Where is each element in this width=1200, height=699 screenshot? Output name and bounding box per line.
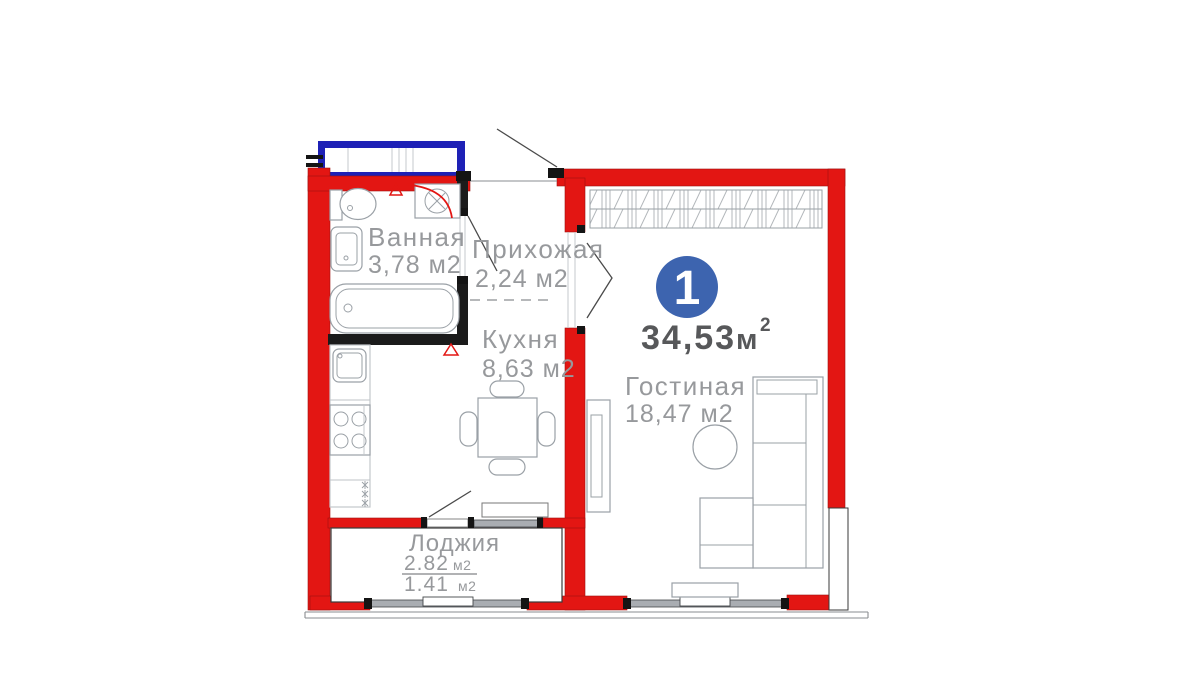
balcony-door-leaf (429, 491, 471, 517)
radiator (482, 503, 548, 517)
stove (330, 405, 370, 455)
summary: 1 34,53 м 2 (641, 256, 771, 357)
wall-loggia-right (543, 518, 585, 528)
coffee-table (693, 425, 737, 469)
loggia-area-reduced-unit: м2 (458, 578, 476, 594)
bathroom-sink (331, 227, 362, 271)
entrance-door-leaf (497, 129, 557, 167)
room-label-hallway: Прихожая (472, 234, 604, 264)
room-area-living: 18,47 м2 (625, 400, 734, 428)
right-side-glazing (829, 508, 848, 610)
dining-table (460, 381, 555, 475)
bathtub (330, 284, 459, 333)
room-area-bathroom: 3,78 м2 (368, 251, 462, 279)
living-window (623, 597, 789, 609)
total-area-unit: м (736, 324, 757, 356)
room-area-hallway: 2,24 м2 (475, 265, 569, 293)
tv-stand (587, 400, 610, 512)
wall-middle-upper (565, 178, 585, 232)
kitchen-sink (333, 349, 366, 382)
wardrobe (590, 190, 822, 228)
rooms-badge-number: 1 (674, 262, 701, 315)
room-area-kitchen: 8,63 м2 (482, 355, 576, 383)
loggia-area-reduced: 1.41 (404, 573, 449, 596)
loggia-area-full-unit: м2 (453, 557, 471, 573)
room-label-bathroom: Ванная (368, 222, 466, 252)
washing-machine (407, 184, 460, 218)
bathroom-toilet (330, 189, 376, 221)
total-area-value: 34,53 (641, 319, 736, 357)
outer-sill-lines (305, 612, 868, 618)
tv-cabinet (672, 583, 738, 597)
floor-plan-drawing: Ванная 3,78 м2 Прихожая 2,24 м2 Кухня 8,… (0, 0, 1200, 699)
total-area-sup: 2 (760, 315, 771, 336)
wall-left (308, 168, 330, 610)
wall-right (828, 169, 845, 508)
wall-top-living (557, 169, 845, 186)
wall-loggia-left (328, 518, 425, 528)
entrance-door (456, 129, 564, 181)
room-label-kitchen: Кухня (482, 324, 559, 354)
vent-triangle-kitchen (444, 344, 458, 355)
loggia-area-full: 2.82 (404, 552, 449, 575)
floor-plan: Ванная 3,78 м2 Прихожая 2,24 м2 Кухня 8,… (0, 0, 1200, 699)
room-label-living: Гостиная (625, 371, 746, 401)
